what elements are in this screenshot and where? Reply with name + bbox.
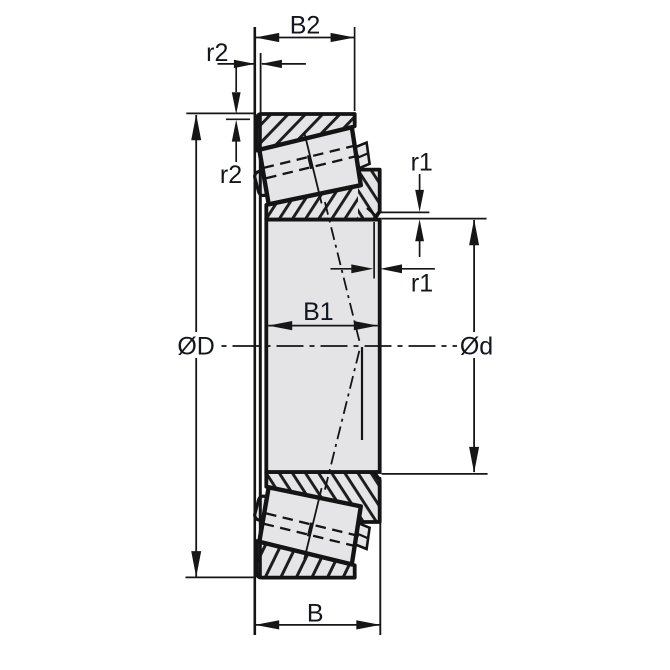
svg-text:r2: r2 xyxy=(220,161,242,189)
svg-text:B2: B2 xyxy=(290,11,321,39)
svg-text:r1: r1 xyxy=(411,148,433,176)
svg-text:B1: B1 xyxy=(303,298,334,326)
svg-text:Ød: Ød xyxy=(460,332,493,360)
svg-text:r1: r1 xyxy=(411,270,433,298)
svg-text:B: B xyxy=(307,600,324,628)
svg-text:ØD: ØD xyxy=(177,332,215,360)
svg-text:r2: r2 xyxy=(206,39,228,67)
